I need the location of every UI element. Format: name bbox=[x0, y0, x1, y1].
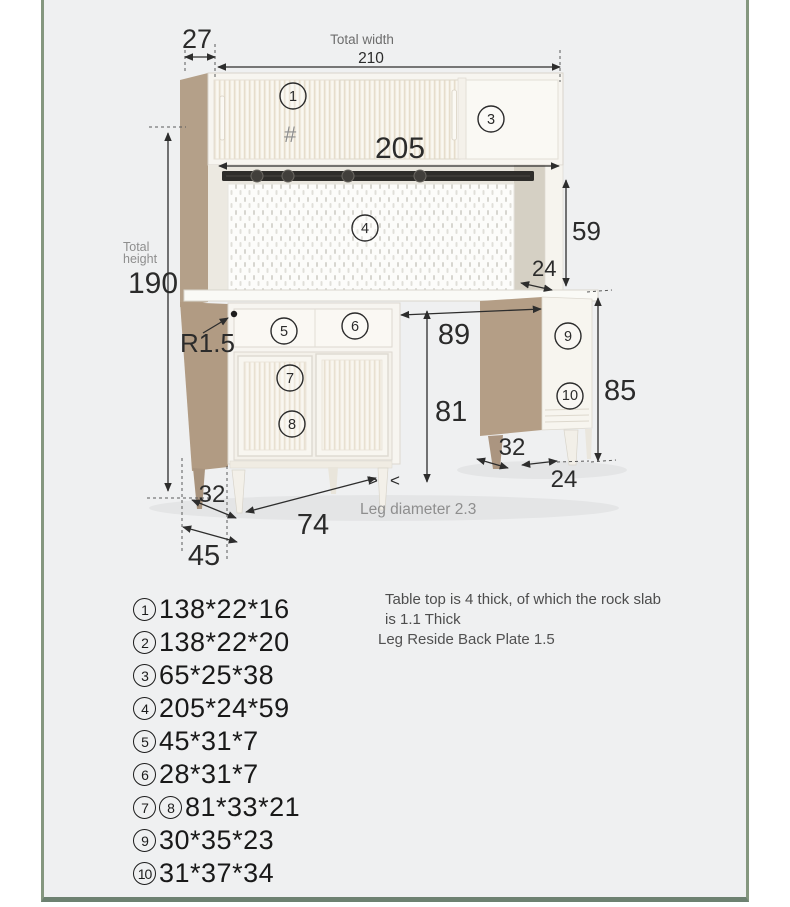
spec-dims-5: 45*31*7 bbox=[159, 726, 259, 757]
spec-row-2: 2 138*22*20 bbox=[133, 626, 300, 659]
dim-pedestal-depth: 24 bbox=[551, 466, 578, 493]
spec-dims-6: 28*31*7 bbox=[159, 759, 259, 790]
spec-dims-2: 138*22*20 bbox=[159, 627, 290, 658]
spec-row-7: 7 8 81*33*21 bbox=[133, 791, 300, 824]
dim-top-offset: 27 bbox=[182, 24, 212, 54]
pedestal-leg-back bbox=[585, 429, 592, 459]
callout-4: 4 bbox=[352, 215, 378, 241]
leg-pointer-left: > bbox=[368, 471, 378, 490]
hutch-side-panel bbox=[180, 73, 208, 307]
spec-marker-4: 4 bbox=[133, 697, 156, 720]
dim-hutch-inner-width: 205 bbox=[375, 132, 425, 165]
shelf-mullion bbox=[458, 78, 466, 159]
spec-row-9: 9 30*35*23 bbox=[133, 824, 300, 857]
spec-marker-1: 1 bbox=[133, 598, 156, 621]
callout-3-number: 3 bbox=[487, 112, 495, 128]
dim-corner-radius: R1.5 bbox=[180, 328, 235, 358]
callout-6-number: 6 bbox=[351, 319, 359, 335]
radius-point bbox=[231, 311, 237, 317]
note-back-plate: Leg Reside Back Plate 1.5 bbox=[378, 631, 555, 648]
door-handle-left bbox=[220, 96, 225, 140]
leg-diameter-note: Leg diameter 2.3 bbox=[360, 501, 476, 518]
spec-row-5: 5 45*31*7 bbox=[133, 725, 300, 758]
dim-sideboard-depth: 45 bbox=[188, 540, 220, 572]
spec-marker-7: 7 bbox=[133, 796, 156, 819]
rail-hook bbox=[282, 170, 294, 182]
dim-knee-space: 89 bbox=[438, 319, 470, 351]
spec-row-10: 10 31*37*34 bbox=[133, 857, 300, 890]
spec-dims-4: 205*24*59 bbox=[159, 693, 290, 724]
rail-hook bbox=[342, 170, 354, 182]
furniture-dimension-drawing: 27 Total width 210 205 # 59 24 Total hei… bbox=[44, 0, 744, 580]
glass-hash-mark: # bbox=[284, 122, 297, 147]
dim-pedestal-height: 85 bbox=[604, 375, 636, 407]
callout-10-number: 10 bbox=[562, 388, 578, 404]
dim-desk-height: 81 bbox=[435, 396, 467, 428]
spec-marker-5: 5 bbox=[133, 730, 156, 753]
spec-list: 1 138*22*16 2 138*22*20 3 65*25*38 4 205… bbox=[133, 593, 300, 890]
rail-hook bbox=[414, 170, 426, 182]
spec-dims-10: 31*37*34 bbox=[159, 858, 274, 889]
spec-dims-3: 65*25*38 bbox=[159, 660, 274, 691]
spec-dims-7-8: 81*33*21 bbox=[185, 792, 300, 823]
product-diagram-panel: 27 Total width 210 205 # 59 24 Total hei… bbox=[41, 0, 749, 902]
leg-pointer-right: < bbox=[390, 471, 400, 490]
backdrop-left-wall bbox=[208, 165, 228, 291]
desk-pedestal bbox=[480, 297, 592, 469]
callout-5: 5 bbox=[271, 318, 297, 344]
callout-9: 9 bbox=[555, 323, 581, 349]
pedestal-leg-right bbox=[564, 430, 578, 465]
spec-row-6: 6 28*31*7 bbox=[133, 758, 300, 791]
spec-dims-1: 138*22*16 bbox=[159, 594, 290, 625]
base-door-right-glass bbox=[322, 360, 382, 450]
spec-row-1: 1 138*22*16 bbox=[133, 593, 300, 626]
rail-hook bbox=[251, 170, 263, 182]
callout-1: 1 bbox=[280, 83, 306, 109]
total-width-label: Total width bbox=[330, 32, 394, 47]
spec-marker-2: 2 bbox=[133, 631, 156, 654]
dim-pedestal-leg-height: 32 bbox=[499, 434, 526, 461]
hutch-cabinet bbox=[180, 73, 563, 307]
callout-1-number: 1 bbox=[289, 89, 297, 105]
dim-sideboard-leg-span: 74 bbox=[297, 509, 329, 541]
callout-9-number: 9 bbox=[564, 329, 572, 345]
callout-5-number: 5 bbox=[280, 324, 288, 340]
spec-marker-6: 6 bbox=[133, 763, 156, 786]
spec-row-3: 3 65*25*38 bbox=[133, 659, 300, 692]
spec-marker-10: 10 bbox=[133, 862, 156, 885]
callout-10: 10 bbox=[557, 383, 583, 409]
dim-total-height: 190 bbox=[128, 267, 178, 300]
callout-7-number: 7 bbox=[286, 371, 294, 387]
door-handle-right bbox=[452, 90, 457, 140]
dim-sideboard-leg-height: 32 bbox=[199, 481, 226, 508]
floor-shadow-pedestal bbox=[457, 461, 627, 479]
spec-row-4: 4 205*24*59 bbox=[133, 692, 300, 725]
glass-door-left bbox=[214, 80, 340, 159]
callout-8: 8 bbox=[279, 411, 305, 437]
callout-8-number: 8 bbox=[288, 417, 296, 433]
dim-shelf-depth: 24 bbox=[532, 256, 556, 281]
spec-dims-9: 30*35*23 bbox=[159, 825, 274, 856]
spec-marker-8: 8 bbox=[159, 796, 182, 819]
callout-6: 6 bbox=[342, 313, 368, 339]
spec-marker-9: 9 bbox=[133, 829, 156, 852]
product-dimension-page: 27 Total width 210 205 # 59 24 Total hei… bbox=[0, 0, 790, 907]
base-apron bbox=[230, 461, 392, 468]
pedestal-side-panel bbox=[480, 297, 542, 436]
callout-7: 7 bbox=[277, 365, 303, 391]
dim-total-width: 210 bbox=[358, 50, 384, 67]
total-height-label-2: height bbox=[123, 252, 158, 266]
note-tabletop-thickness: Table top is 4 thick, of which the rock … bbox=[385, 590, 667, 630]
callout-4-number: 4 bbox=[361, 221, 369, 237]
dim-pegboard-height: 59 bbox=[572, 216, 601, 246]
spec-marker-3: 3 bbox=[133, 664, 156, 687]
callout-3: 3 bbox=[478, 106, 504, 132]
